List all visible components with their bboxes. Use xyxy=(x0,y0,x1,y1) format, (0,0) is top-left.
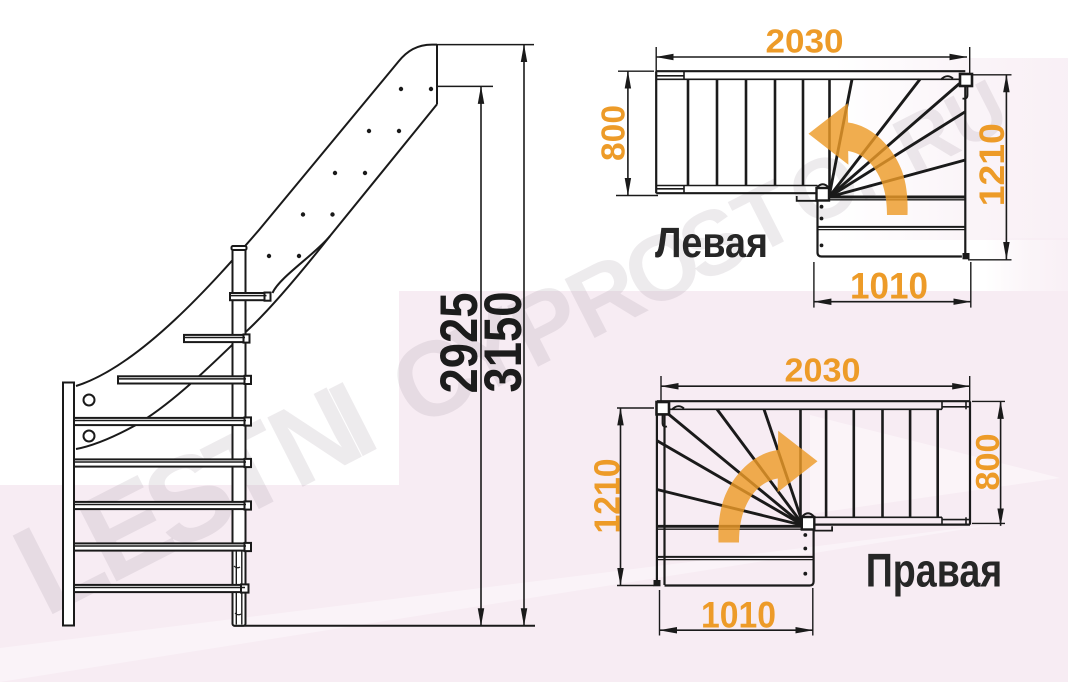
svg-text:1210: 1210 xyxy=(973,123,1012,206)
svg-text:1010: 1010 xyxy=(850,266,928,307)
svg-text:1010: 1010 xyxy=(701,595,776,636)
svg-text:800: 800 xyxy=(595,105,632,161)
svg-text:Правая: Правая xyxy=(866,544,1003,597)
svg-text:3150: 3150 xyxy=(474,292,533,393)
svg-text:800: 800 xyxy=(969,434,1006,491)
svg-text:2030: 2030 xyxy=(785,352,861,389)
svg-text:Левая: Левая xyxy=(655,220,768,267)
svg-text:2030: 2030 xyxy=(766,22,844,59)
svg-text:1210: 1210 xyxy=(587,459,628,534)
